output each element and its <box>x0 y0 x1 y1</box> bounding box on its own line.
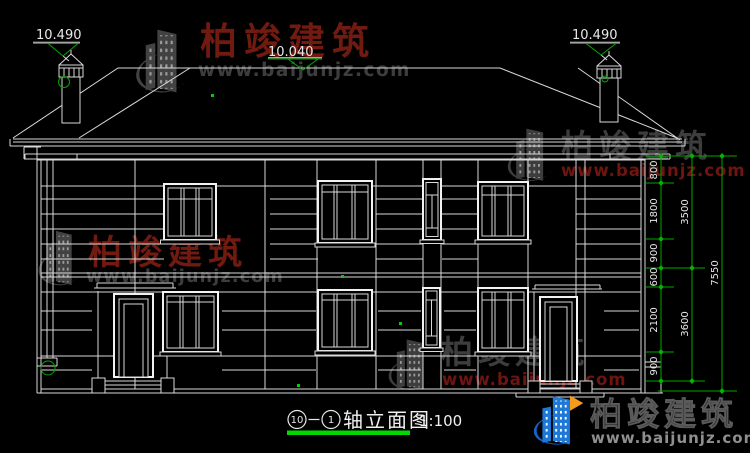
axis-end-number: 1 <box>328 415 334 426</box>
dim-1800: 1800 <box>649 198 660 223</box>
dim-900-a: 900 <box>649 243 660 262</box>
window-lower-narrow <box>420 288 443 352</box>
dim-600: 600 <box>649 267 660 286</box>
elevation-marker-right: 10.490 <box>570 28 620 60</box>
dim-7550: 7550 <box>710 260 721 285</box>
brand-building-icon <box>136 30 186 93</box>
window-upper-right <box>475 182 531 244</box>
right-chimney <box>597 51 621 122</box>
window-lower-center <box>315 290 375 355</box>
elevation-marker-left: 10.490 <box>33 28 82 61</box>
dim-3600: 3600 <box>680 311 691 336</box>
elevation-value: 10.490 <box>36 28 82 43</box>
brand-url: www.baijunjz.com <box>591 429 750 447</box>
axis-start-number: 10 <box>291 415 304 426</box>
dim-2100: 2100 <box>649 307 660 332</box>
brand-logo-icon <box>534 395 583 444</box>
left-chimney <box>59 50 83 123</box>
elevation-value: 10.490 <box>572 28 618 43</box>
title-underline <box>287 431 410 436</box>
window-upper-left <box>161 184 220 244</box>
brand-logo: 柏竣建筑 www.baijunjz.com <box>534 395 750 447</box>
window-upper-narrow <box>420 179 444 244</box>
drawing-scale: 1:100 <box>419 412 462 430</box>
dim-800: 800 <box>649 160 660 179</box>
dim-900-b: 900 <box>649 356 660 375</box>
architectural-drawing-canvas: 柏竣建筑 www.baijunjz.com 柏竣建筑 www.baijunjz.… <box>0 0 750 453</box>
title-text: 轴立面图 <box>343 408 431 432</box>
brand-name: 柏竣建筑 <box>590 395 738 433</box>
window-lower-right <box>475 288 531 356</box>
drawing-title: 10 1 轴立面图 1:100 <box>287 408 462 435</box>
watermark-url: www.baijunjz.com <box>198 60 411 81</box>
dim-3500: 3500 <box>680 199 691 224</box>
brand-building-icon <box>508 129 552 181</box>
window-lower-left <box>160 292 221 356</box>
dimension-lines: 800 1800 900 600 2100 900 3500 3600 7550 <box>646 153 737 394</box>
window-upper-center <box>315 181 375 247</box>
elevation-drawing: 柏竣建筑 www.baijunjz.com 柏竣建筑 www.baijunjz.… <box>0 0 750 453</box>
